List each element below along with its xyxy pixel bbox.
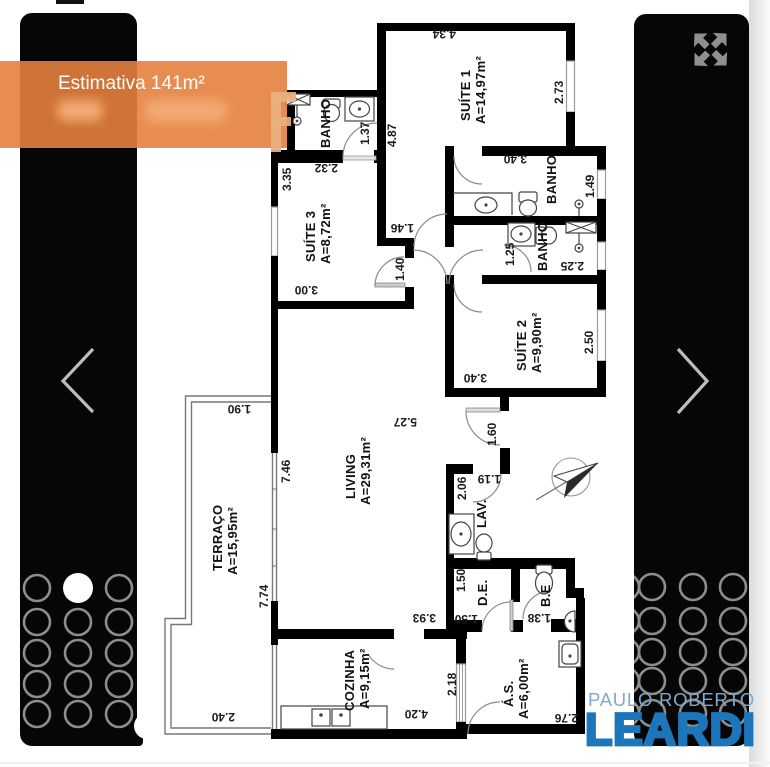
svg-text:3.00: 3.00 bbox=[294, 283, 318, 297]
svg-text:TERRAÇOA=15,95m²: TERRAÇOA=15,95m² bbox=[210, 505, 240, 575]
svg-text:1.60: 1.60 bbox=[485, 422, 499, 446]
svg-text:B.E: B.E bbox=[538, 584, 553, 607]
svg-text:3.40: 3.40 bbox=[463, 371, 487, 385]
svg-text:1.38: 1.38 bbox=[527, 611, 551, 625]
svg-text:7.46: 7.46 bbox=[279, 459, 293, 483]
svg-text:2.76: 2.76 bbox=[554, 711, 578, 725]
svg-text:BANHO: BANHO bbox=[318, 99, 333, 148]
svg-text:2.40: 2.40 bbox=[211, 710, 235, 724]
svg-text:2.25: 2.25 bbox=[560, 259, 584, 273]
svg-text:1.40: 1.40 bbox=[393, 257, 407, 281]
svg-text:LAV.: LAV. bbox=[474, 499, 489, 528]
svg-text:2.50: 2.50 bbox=[582, 330, 596, 354]
svg-text:D.E.: D.E. bbox=[475, 580, 490, 606]
svg-text:3.35: 3.35 bbox=[280, 167, 294, 191]
svg-text:BANHO: BANHO bbox=[544, 155, 559, 204]
svg-text:7.74: 7.74 bbox=[257, 584, 271, 608]
svg-text:BANHO: BANHO bbox=[535, 222, 550, 271]
svg-text:1.19: 1.19 bbox=[477, 472, 501, 486]
svg-text:3.40: 3.40 bbox=[503, 152, 527, 166]
svg-text:5.27: 5.27 bbox=[393, 415, 417, 429]
svg-text:SUÍTE 2A=9,90m²: SUÍTE 2A=9,90m² bbox=[514, 312, 544, 373]
svg-text:SUÍTE 3A=8,72m²: SUÍTE 3A=8,72m² bbox=[303, 203, 333, 264]
svg-text:2.18: 2.18 bbox=[445, 672, 459, 696]
svg-text:4.20: 4.20 bbox=[404, 707, 428, 721]
svg-text:LEARDI: LEARDI bbox=[585, 704, 756, 755]
svg-text:3.93: 3.93 bbox=[412, 611, 436, 625]
svg-text:2.32: 2.32 bbox=[314, 161, 338, 175]
svg-text:1.49: 1.49 bbox=[583, 174, 597, 198]
svg-text:1.25: 1.25 bbox=[503, 242, 517, 266]
svg-text:Estimativa 141m²: Estimativa 141m² bbox=[58, 73, 205, 94]
svg-text:2.06: 2.06 bbox=[455, 476, 469, 500]
svg-text:1.50: 1.50 bbox=[454, 612, 478, 626]
svg-text:1.90: 1.90 bbox=[227, 402, 251, 416]
svg-text:COZINHAA=9,15m²: COZINHAA=9,15m² bbox=[342, 648, 372, 711]
svg-text:1.46: 1.46 bbox=[390, 221, 414, 235]
svg-text:4.87: 4.87 bbox=[385, 123, 399, 147]
svg-text:1.37: 1.37 bbox=[358, 121, 372, 145]
svg-text:2.73: 2.73 bbox=[552, 80, 566, 104]
svg-text:4.34: 4.34 bbox=[432, 27, 456, 41]
svg-text:1.50: 1.50 bbox=[454, 568, 468, 592]
